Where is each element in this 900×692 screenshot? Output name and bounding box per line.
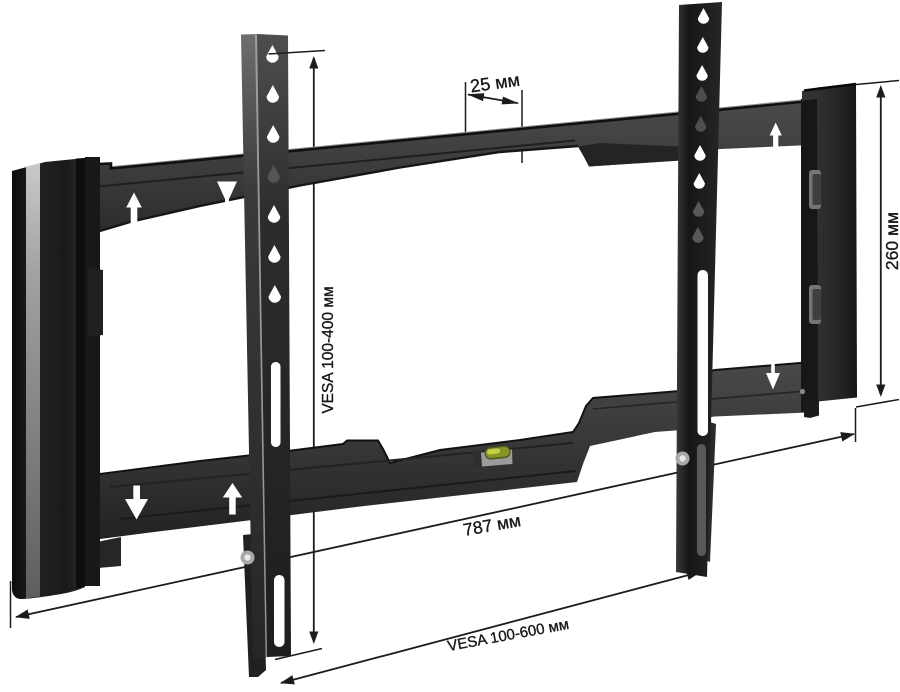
svg-text:260 мм: 260 мм bbox=[882, 212, 900, 270]
svg-text:VESA 100-400 мм: VESA 100-400 мм bbox=[320, 286, 337, 413]
